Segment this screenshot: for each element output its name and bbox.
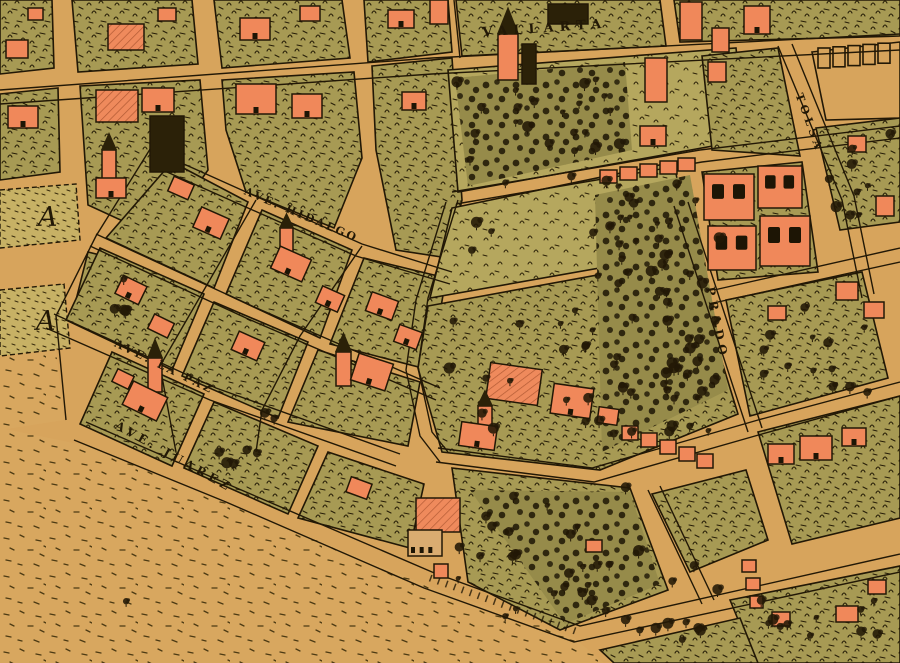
courtyard-building [708,226,756,270]
building [430,0,448,24]
building [641,433,657,447]
courtyard-building [760,216,810,266]
building [434,564,448,578]
map-viewport[interactable]: VALLARTAAVE. HIDALGOAVE. LA PAZAVE. JUAR… [0,0,900,663]
vacant-lot-marker: A [35,202,58,233]
building [868,580,886,594]
building [660,161,677,174]
market-stall [833,47,845,67]
building [680,2,702,40]
market-stall [863,44,875,64]
shaded-building [150,116,184,172]
building [679,447,695,461]
building [300,6,320,21]
building [876,196,894,216]
building [486,363,543,406]
building [800,436,832,460]
building [836,606,858,622]
market-stall [848,46,860,66]
market-stall [818,48,830,68]
building [158,8,176,21]
shaded-building [522,44,536,84]
building [28,8,43,20]
birdseye-map-canvas[interactable]: VALLARTAAVE. HIDALGOAVE. LA PAZAVE. JUAR… [0,0,900,663]
building [108,24,144,50]
vacant-lot-marker: A [33,306,56,337]
building [640,164,657,177]
building [660,440,676,454]
building [388,10,414,28]
building [142,88,174,112]
building [6,40,28,58]
building [408,530,442,556]
market-stall [878,43,890,63]
building [697,454,713,468]
building [712,28,729,52]
city-block [214,0,350,68]
building [236,84,276,114]
building [96,90,138,122]
building [746,578,760,590]
building [240,18,270,40]
building [586,540,602,552]
building [620,167,637,180]
building [96,178,126,198]
building [416,498,460,532]
building [768,444,794,464]
building [640,126,666,146]
building [768,306,786,320]
city-block [0,0,54,74]
building [836,282,858,300]
building [744,6,770,34]
building [402,92,426,110]
building [864,302,884,318]
building [708,62,726,82]
building [645,58,667,102]
building [8,106,38,128]
building [292,94,322,118]
building [742,560,756,572]
building [678,158,695,171]
building [842,428,866,446]
courtyard-building [758,166,802,208]
courtyard-building [704,174,754,220]
